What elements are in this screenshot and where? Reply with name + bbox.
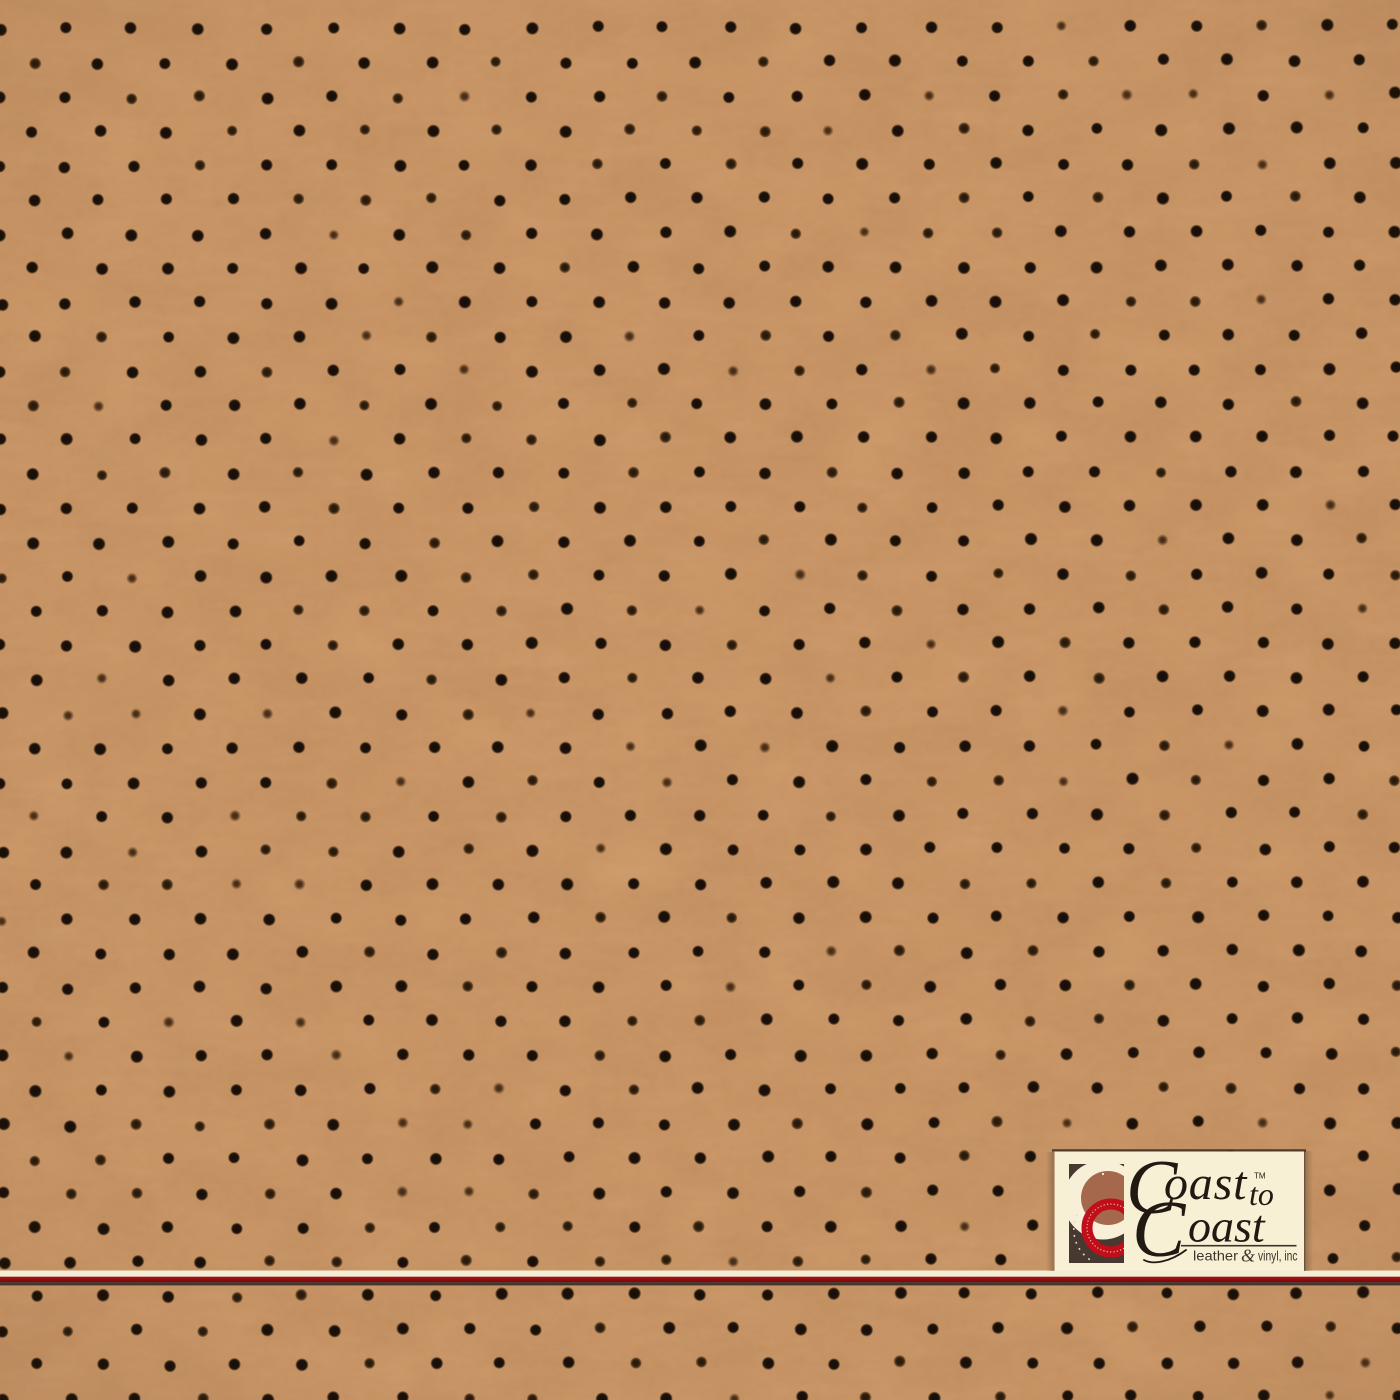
svg-text:&: & (1241, 1246, 1255, 1266)
svg-text:oast: oast (1188, 1201, 1266, 1252)
svg-text:C: C (1132, 1186, 1187, 1274)
svg-text:vinyl, inc: vinyl, inc (1258, 1248, 1298, 1264)
svg-text:leather: leather (1193, 1248, 1238, 1264)
